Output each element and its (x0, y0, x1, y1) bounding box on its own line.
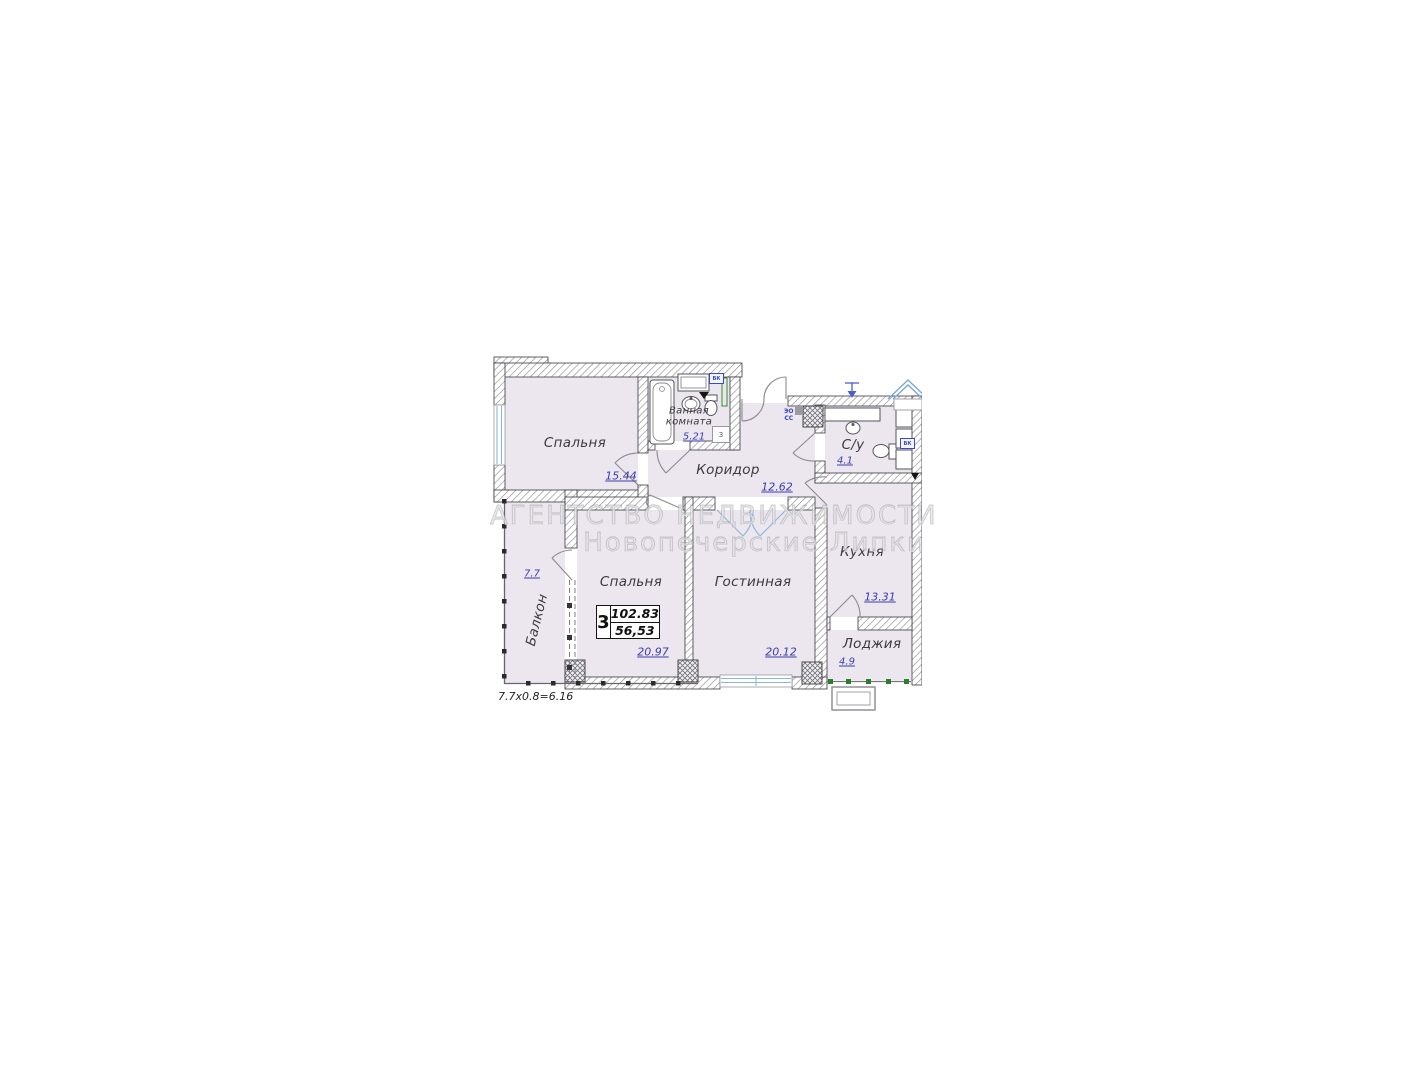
floor-plan-page: Спальня 15.44 Ванная комната 5.21 3 Кори… (0, 0, 1426, 1070)
vk-label-wc: ВК (900, 438, 915, 449)
kitchen-area: 13.31 (864, 591, 896, 604)
toilet-wc-icon (873, 444, 897, 459)
wc-label: С/у (842, 437, 865, 453)
bedroom-main-area: 20.97 (637, 646, 669, 659)
living-room-area: 20.12 (765, 646, 797, 659)
column-bedroom (678, 660, 698, 682)
bedroom-top-label: Спальня (544, 435, 606, 451)
column-living (802, 662, 822, 684)
loggia-area: 4.9 (839, 657, 855, 668)
riser-block (795, 406, 803, 415)
wc-sink-icon (846, 422, 860, 434)
column-entry (803, 406, 823, 427)
riser-label-line2: СС (784, 416, 794, 423)
washer-cabinet-icon (678, 374, 709, 391)
bathroom-marker-box: 3 (712, 426, 730, 443)
balcony-calc-note: 7.7x0.8=6.16 (498, 690, 573, 703)
wc-cabinet-3 (896, 450, 912, 469)
wc-cabinet-1 (896, 408, 912, 427)
wc-shelf (825, 408, 880, 421)
living-room-label: Гостинная (715, 574, 792, 590)
living-room-window (720, 675, 792, 687)
balcony-area: 7.7 (524, 569, 540, 580)
bedroom-main-floor (577, 510, 685, 677)
floor-plan: Спальня 15.44 Ванная комната 5.21 3 Кори… (490, 353, 922, 715)
vk-label-bathroom: ВК (709, 373, 724, 384)
bathroom-label-line2: комната (666, 417, 712, 428)
corridor-label: Коридор (696, 462, 759, 478)
living-area: 56,53 (611, 623, 659, 639)
riser-label: ЭО СС (784, 409, 794, 423)
wc-area: 4.1 (837, 456, 853, 467)
ac-unit (832, 687, 875, 710)
bathroom-label-line1: Ванная (669, 406, 709, 417)
rooms-count: 3 (597, 606, 611, 638)
bedroom-top-window (494, 405, 505, 465)
loggia-label: Лоджия (843, 636, 902, 652)
bedroom-top-area: 15.44 (605, 470, 637, 483)
kitchen-label: Кухня (840, 544, 884, 560)
corridor-area: 12.62 (761, 481, 793, 494)
bedroom-main-label: Спальня (600, 574, 662, 590)
apartment-info-box: 3 102.83 56,53 (596, 605, 660, 639)
total-area: 102.83 (611, 606, 659, 623)
bathroom-area: 5.21 (683, 432, 705, 443)
